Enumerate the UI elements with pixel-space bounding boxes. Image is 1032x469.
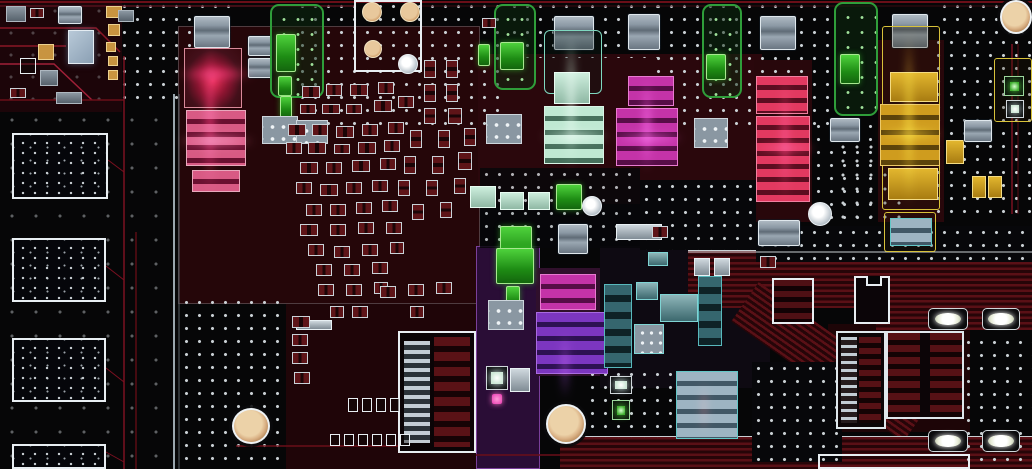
pad[interactable] bbox=[348, 398, 358, 412]
cap-courtyard[interactable] bbox=[702, 4, 742, 98]
led[interactable] bbox=[610, 376, 632, 394]
capacitor[interactable] bbox=[676, 371, 738, 439]
passive-pad[interactable] bbox=[318, 284, 334, 296]
pad[interactable] bbox=[376, 398, 386, 412]
passive-pad[interactable] bbox=[300, 162, 318, 174]
ic[interactable] bbox=[634, 324, 664, 354]
smd-part[interactable] bbox=[118, 10, 134, 22]
transistor[interactable] bbox=[280, 96, 292, 118]
led[interactable] bbox=[1004, 76, 1024, 96]
passive-pad[interactable] bbox=[292, 316, 310, 328]
test-pad[interactable] bbox=[982, 430, 1020, 452]
passive-pad[interactable] bbox=[380, 286, 396, 298]
capacitor[interactable] bbox=[194, 16, 230, 48]
pad[interactable] bbox=[358, 434, 368, 446]
passive-pad[interactable] bbox=[390, 242, 404, 254]
passive-pad[interactable] bbox=[350, 84, 368, 96]
capacitor[interactable] bbox=[758, 220, 800, 246]
via-grid bbox=[752, 362, 842, 462]
passive-pad[interactable] bbox=[296, 182, 312, 194]
passive-pad[interactable] bbox=[292, 334, 308, 346]
passive-pad[interactable] bbox=[330, 204, 346, 216]
passive-pad[interactable] bbox=[440, 202, 452, 218]
passive-pad[interactable] bbox=[454, 178, 466, 194]
gold-pad[interactable] bbox=[106, 42, 116, 52]
passive-pad[interactable] bbox=[352, 160, 370, 172]
passive-pad[interactable] bbox=[372, 262, 388, 274]
passive-pad[interactable] bbox=[356, 202, 372, 214]
passive-pad[interactable] bbox=[288, 124, 306, 136]
passive-pad[interactable] bbox=[346, 104, 362, 114]
led[interactable] bbox=[1006, 100, 1024, 118]
inductor[interactable] bbox=[544, 106, 604, 164]
passive-pad[interactable] bbox=[362, 244, 378, 256]
passive-pad[interactable] bbox=[308, 244, 324, 256]
transistor[interactable] bbox=[500, 42, 524, 70]
th-pad[interactable] bbox=[364, 40, 382, 58]
led[interactable] bbox=[612, 400, 630, 420]
passive-pad[interactable] bbox=[438, 130, 450, 148]
ic[interactable] bbox=[488, 300, 524, 330]
mounting-hole[interactable] bbox=[232, 408, 270, 444]
passive-pad[interactable] bbox=[358, 222, 374, 234]
passive-pad[interactable] bbox=[306, 204, 322, 216]
inductor[interactable] bbox=[628, 76, 674, 106]
passive-pad[interactable] bbox=[326, 162, 342, 174]
ic[interactable] bbox=[694, 118, 728, 148]
pad[interactable] bbox=[20, 58, 36, 74]
transistor[interactable] bbox=[556, 184, 582, 210]
th-pad[interactable] bbox=[582, 196, 602, 216]
passive-pad[interactable] bbox=[286, 142, 302, 154]
passive-pad[interactable] bbox=[300, 224, 318, 236]
capacitor[interactable] bbox=[628, 14, 660, 50]
passive-pad[interactable] bbox=[404, 156, 416, 174]
inductor[interactable] bbox=[184, 48, 242, 108]
pad-array[interactable] bbox=[604, 284, 632, 368]
passive-pad[interactable] bbox=[424, 84, 436, 102]
pad[interactable] bbox=[636, 282, 658, 300]
connector-footprint[interactable] bbox=[12, 238, 106, 302]
pad[interactable] bbox=[528, 192, 550, 210]
passive-pad[interactable] bbox=[312, 124, 328, 136]
passive-pad[interactable] bbox=[374, 100, 392, 112]
passive-pad[interactable] bbox=[30, 8, 44, 18]
capacitor[interactable] bbox=[830, 118, 860, 142]
th-pad[interactable] bbox=[398, 54, 418, 74]
mounting-hole[interactable] bbox=[546, 404, 586, 444]
transistor[interactable] bbox=[496, 248, 534, 284]
transistor[interactable] bbox=[478, 44, 490, 66]
passive-pad[interactable] bbox=[382, 200, 398, 212]
passive-pad[interactable] bbox=[386, 222, 402, 234]
passive-pad[interactable] bbox=[760, 256, 776, 268]
passive-pad[interactable] bbox=[408, 284, 424, 296]
pad[interactable] bbox=[344, 434, 354, 446]
passive-pad[interactable] bbox=[300, 104, 316, 114]
th-pad[interactable] bbox=[362, 2, 382, 22]
transistor[interactable] bbox=[276, 34, 296, 72]
transistor[interactable] bbox=[706, 54, 726, 80]
led[interactable] bbox=[492, 394, 502, 404]
capacitor[interactable] bbox=[558, 224, 588, 254]
connector-footprint[interactable] bbox=[12, 338, 106, 402]
pcb-canvas[interactable] bbox=[0, 0, 1032, 469]
capacitor[interactable] bbox=[58, 6, 82, 24]
passive-pad[interactable] bbox=[384, 140, 400, 152]
passive-pad[interactable] bbox=[410, 306, 424, 318]
ic[interactable] bbox=[854, 276, 890, 324]
passive-pad[interactable] bbox=[410, 130, 422, 148]
passive-pad[interactable] bbox=[346, 284, 362, 296]
pad[interactable] bbox=[888, 168, 938, 200]
passive-pad[interactable] bbox=[352, 306, 368, 318]
via-grid bbox=[652, 0, 838, 128]
passive-pad[interactable] bbox=[412, 204, 424, 220]
pad[interactable] bbox=[470, 186, 496, 208]
test-pad[interactable] bbox=[982, 308, 1020, 330]
pad[interactable] bbox=[890, 72, 938, 102]
test-pad[interactable] bbox=[928, 430, 968, 452]
transistor[interactable] bbox=[278, 76, 292, 96]
inductor[interactable] bbox=[536, 312, 608, 374]
capacitor[interactable] bbox=[248, 36, 272, 56]
pad[interactable] bbox=[554, 72, 590, 104]
passive-pad[interactable] bbox=[436, 282, 452, 294]
transistor[interactable] bbox=[840, 54, 860, 84]
pad[interactable] bbox=[330, 434, 340, 446]
mounting-hole[interactable] bbox=[1000, 0, 1032, 34]
ic[interactable] bbox=[486, 114, 522, 144]
passive-pad[interactable] bbox=[464, 128, 476, 146]
th-pad[interactable] bbox=[808, 202, 832, 226]
passive-pad[interactable] bbox=[294, 372, 310, 384]
ic[interactable] bbox=[772, 278, 814, 324]
soic-ic[interactable] bbox=[68, 30, 94, 64]
passive-pad[interactable] bbox=[380, 158, 396, 170]
passive-pad[interactable] bbox=[308, 142, 326, 154]
inductor[interactable] bbox=[880, 104, 940, 166]
smd-part[interactable] bbox=[714, 258, 730, 276]
passive-pad[interactable] bbox=[320, 184, 338, 196]
via-grid bbox=[586, 368, 686, 438]
connector[interactable] bbox=[836, 331, 886, 429]
inductor[interactable] bbox=[756, 76, 808, 114]
passive-pad[interactable] bbox=[432, 156, 444, 174]
inductor[interactable] bbox=[756, 116, 810, 202]
pad[interactable] bbox=[362, 398, 372, 412]
gold-pad[interactable] bbox=[108, 56, 118, 66]
passive-pad[interactable] bbox=[458, 152, 472, 170]
connector-footprint[interactable] bbox=[12, 444, 106, 469]
led[interactable] bbox=[486, 366, 508, 390]
passive-pad[interactable] bbox=[334, 246, 350, 258]
capacitor[interactable] bbox=[890, 218, 932, 246]
gold-pad[interactable] bbox=[108, 70, 118, 80]
connector[interactable] bbox=[886, 331, 964, 419]
pad-array[interactable] bbox=[698, 276, 722, 346]
pad[interactable] bbox=[390, 398, 400, 412]
passive-pad[interactable] bbox=[426, 180, 438, 196]
pad[interactable] bbox=[372, 434, 382, 446]
connector-footprint[interactable] bbox=[12, 133, 108, 199]
passive-pad[interactable] bbox=[322, 104, 340, 114]
via-grid bbox=[180, 296, 286, 469]
pad[interactable] bbox=[648, 252, 668, 266]
passive-pad[interactable] bbox=[398, 180, 410, 196]
test-pad[interactable] bbox=[928, 308, 968, 330]
th-pad[interactable] bbox=[400, 2, 420, 22]
smd-part[interactable] bbox=[56, 92, 82, 104]
passive-pad[interactable] bbox=[652, 226, 668, 238]
passive-pad[interactable] bbox=[446, 84, 458, 102]
smd-part[interactable] bbox=[694, 258, 710, 276]
gold-pad[interactable] bbox=[108, 24, 120, 36]
pad[interactable] bbox=[946, 140, 964, 164]
passive-pad[interactable] bbox=[482, 18, 496, 28]
passive-pad[interactable] bbox=[292, 352, 308, 364]
passive-pad[interactable] bbox=[302, 86, 320, 98]
capacitor[interactable] bbox=[760, 16, 796, 50]
smd-part[interactable] bbox=[6, 6, 26, 22]
pad[interactable] bbox=[500, 192, 524, 210]
passive-pad[interactable] bbox=[10, 88, 26, 98]
pad[interactable] bbox=[988, 176, 1002, 198]
inductor[interactable] bbox=[616, 108, 678, 166]
pad[interactable] bbox=[972, 176, 986, 198]
passive-pad[interactable] bbox=[448, 108, 462, 124]
passive-pad[interactable] bbox=[378, 82, 394, 94]
passive-pad[interactable] bbox=[362, 124, 378, 136]
passive-pad[interactable] bbox=[398, 96, 414, 108]
passive-pad[interactable] bbox=[358, 142, 376, 154]
capacitor[interactable] bbox=[248, 58, 272, 78]
inductor[interactable] bbox=[540, 274, 596, 310]
passive-pad[interactable] bbox=[326, 84, 342, 96]
passive-pad[interactable] bbox=[330, 224, 346, 236]
passive-pad[interactable] bbox=[334, 144, 350, 154]
smd-part[interactable] bbox=[510, 368, 530, 392]
pad[interactable] bbox=[660, 294, 698, 322]
capacitor[interactable] bbox=[964, 120, 992, 142]
passive-pad[interactable] bbox=[336, 126, 354, 138]
passive-pad[interactable] bbox=[316, 264, 332, 276]
passive-pad[interactable] bbox=[424, 108, 436, 124]
passive-pad[interactable] bbox=[346, 182, 362, 194]
inductor[interactable] bbox=[186, 110, 246, 166]
passive-pad[interactable] bbox=[424, 60, 436, 78]
inductor[interactable] bbox=[192, 170, 240, 192]
passive-pad[interactable] bbox=[372, 180, 388, 192]
pad[interactable] bbox=[386, 434, 396, 446]
passive-pad[interactable] bbox=[446, 60, 458, 78]
footprint-outline[interactable] bbox=[818, 454, 970, 469]
passive-pad[interactable] bbox=[330, 306, 344, 318]
passive-pad[interactable] bbox=[344, 264, 360, 276]
gold-pad[interactable] bbox=[38, 44, 54, 60]
passive-pad[interactable] bbox=[388, 122, 404, 134]
smd-part[interactable] bbox=[40, 70, 58, 86]
pad[interactable] bbox=[400, 434, 410, 446]
